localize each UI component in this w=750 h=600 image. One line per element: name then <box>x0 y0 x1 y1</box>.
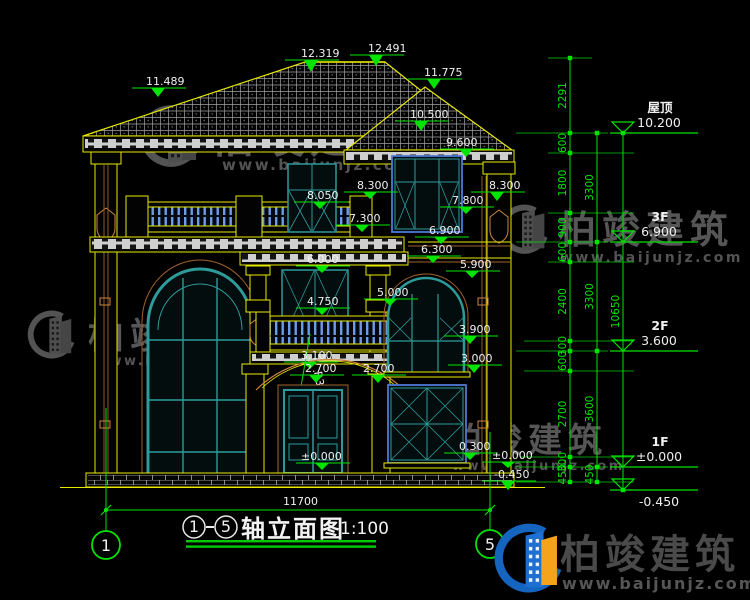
dim-chain-label: 3600 <box>584 396 596 423</box>
floor-elevation-value: -0.450 <box>639 494 679 509</box>
dimension-chain: 10650 <box>610 131 625 492</box>
spot-elevation-value: 8.300 <box>489 179 521 192</box>
dim-chain-label: 2700 <box>557 401 569 428</box>
dim-chain-label: 450 <box>584 464 596 484</box>
title-scale: 1:100 <box>340 519 389 539</box>
dim-chain-label: 10650 <box>610 295 622 328</box>
axis-bubble: 1 <box>92 531 120 559</box>
logo-brand: 柏竣建筑 <box>560 532 740 578</box>
logo-url: www.baijunjz.com <box>562 574 750 593</box>
spot-elevation-value: 6.000 <box>307 253 339 266</box>
spot-elevation-value: 5.900 <box>460 258 492 271</box>
floor-name: 2F <box>651 318 668 333</box>
title-text: 轴立面图 <box>241 515 345 543</box>
dim-chain-label: 450 <box>557 464 569 484</box>
spot-elevation-value: 2.700 <box>305 362 337 375</box>
plinth-base <box>60 473 545 488</box>
dim-chain-label: 3300 <box>584 283 596 310</box>
spot-elevation-value: 8.300 <box>357 179 389 192</box>
spot-elevation-value: 4.750 <box>307 295 339 308</box>
floor-elevation-value: ±0.000 <box>636 449 682 464</box>
floor-level-marker: 屋顶10.200 <box>610 100 698 133</box>
spot-elevation-value: 11.489 <box>146 75 185 88</box>
title-underline <box>186 540 376 542</box>
floor-elevation-value: 3.600 <box>641 333 677 348</box>
spot-elevation-value: 12.491 <box>368 42 407 55</box>
spot-elevation-value: 3.100 <box>301 349 333 362</box>
floor-name: 1F <box>651 434 668 449</box>
spot-elevation-value: 7.800 <box>452 194 484 207</box>
title-underline <box>186 545 376 547</box>
window-left-tall-arched <box>142 260 258 473</box>
axis-bubble-label: 5 <box>485 535 495 554</box>
spot-elevation-value: 0.300 <box>459 440 491 453</box>
spot-elevation-marker: 2.700 <box>290 362 344 383</box>
title-axis-end: 5 <box>221 517 231 536</box>
floor-name: 3F <box>651 209 668 224</box>
spot-elevation-value: 2.700 <box>363 362 395 375</box>
spot-elevation-value: 10.500 <box>410 108 449 121</box>
dim-chain-label: 900 <box>557 217 569 237</box>
floor-elevation-value: 6.900 <box>641 224 677 239</box>
drawing-title: 1 5 轴立面图 1:100 <box>183 515 389 548</box>
company-logo: 柏竣建筑www.baijunjz.com <box>499 528 750 593</box>
floor-elevation-value: 10.200 <box>637 115 681 130</box>
cad-drawing-page: 柏竣建筑www.baijunjz.com柏竣建筑www.baijunjz.com… <box>0 0 750 600</box>
spot-elevation-value: ±0.000 <box>301 450 342 463</box>
window-1f-right <box>384 385 470 468</box>
spot-elevation-value: -0.450 <box>494 468 529 481</box>
dim-chain-label: 1800 <box>557 170 569 197</box>
spot-elevation-value: 5.000 <box>377 286 409 299</box>
dim-chain-label: 3300 <box>584 174 596 201</box>
spot-elevation-value: 6.900 <box>429 224 461 237</box>
spot-elevation-value: 7.300 <box>349 212 381 225</box>
elevation-drawing-canvas: 柏竣建筑www.baijunjz.com柏竣建筑www.baijunjz.com… <box>0 0 750 600</box>
spot-elevation-value: 6.300 <box>421 243 453 256</box>
dim-chain-label: 600 <box>557 351 569 371</box>
floor-name: 屋顶 <box>647 100 673 115</box>
dim-chain-label: 600 <box>557 242 569 262</box>
brand-glyph-icon <box>31 313 72 355</box>
spot-elevation-marker: 11.489 <box>132 75 186 97</box>
spot-elevation-value: 11.775 <box>424 66 463 79</box>
spot-elevation-value: 9.600 <box>446 136 478 149</box>
dim-chain-label: 2291 <box>557 82 569 109</box>
spot-elevation-value: 12.319 <box>301 47 340 60</box>
axis-bubble-label: 1 <box>101 536 111 555</box>
spot-elevation-marker: 11.775 <box>408 66 463 89</box>
dim-chain-label: 600 <box>557 133 569 153</box>
spot-elevation-value: ±0.000 <box>492 449 533 462</box>
title-axis-start: 1 <box>189 517 199 536</box>
dimension-chain: 2291600180090060024003006002700300450 <box>557 56 572 485</box>
spot-elevation-value: 3.900 <box>459 323 491 336</box>
spot-elevation-value: 8.050 <box>307 189 339 202</box>
overall-width-value: 11700 <box>283 495 318 508</box>
brand-glyph-icon <box>499 528 558 588</box>
spot-elevation-value: 3.000 <box>461 352 493 365</box>
dim-chain-label: 2400 <box>557 288 569 315</box>
watermark-url: www.baijunjz.com <box>560 250 743 266</box>
